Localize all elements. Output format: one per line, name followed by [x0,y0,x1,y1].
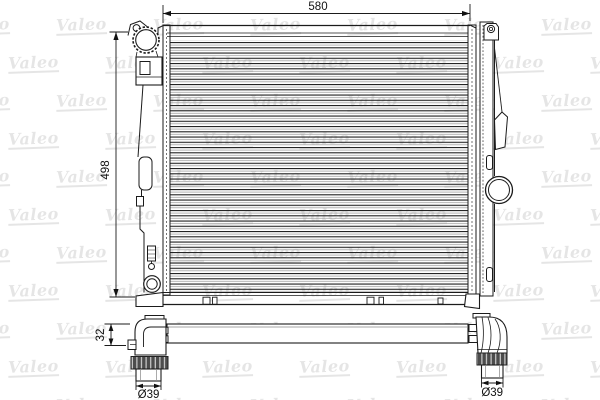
catalog-image: ValeoValeoValeoValeoValeoValeoValeoValeo… [0,0,600,400]
front-view [128,21,476,307]
tank-profile-edge [138,85,143,157]
dimension-overall-width: 580 [163,1,470,23]
mounting-pin-upper [487,156,493,170]
dim-label-width: 580 [308,1,327,13]
filler-cap [133,27,159,53]
pipe-right [482,365,504,378]
tank-pill-bracket [139,157,152,190]
hose-port [486,177,513,204]
dimension-right-pipe-diameter: Ø39 [481,379,503,400]
pipe-left [136,369,161,381]
radiator-diagram: 580 498 32 Ø39 Ø39 [0,0,600,400]
bleed-screw [148,246,156,270]
core-side-channel-right [468,25,476,296]
dimension-outlet-height: 32 [95,324,130,346]
mounting-pin-lower [487,268,493,282]
left-tank [128,21,163,307]
top-header [163,26,470,37]
hose-barb-left [131,357,168,370]
mounting-bracket-top-right [484,24,499,41]
side-bracket-flag [495,112,508,150]
inlet-elbow-right [469,314,507,354]
drain-plug [144,276,161,293]
expansion-fitting [136,57,162,85]
mounting-foot-right [465,294,480,309]
dim-label-height: 498 [100,160,112,179]
bottom-frame [154,293,470,305]
outlet-elbow-left [128,316,168,356]
mounting-foot-left [136,293,163,307]
dim-label-right-pipe: Ø39 [481,387,503,399]
bottom-view [128,314,507,382]
dimension-left-pipe-diameter: Ø39 [136,382,161,400]
dimension-overall-height: 498 [100,32,135,297]
dim-label-outlet-height: 32 [95,329,107,342]
radiator-core [170,40,468,292]
hose-barb-right [477,353,507,365]
dim-label-left-pipe: Ø39 [138,389,160,400]
